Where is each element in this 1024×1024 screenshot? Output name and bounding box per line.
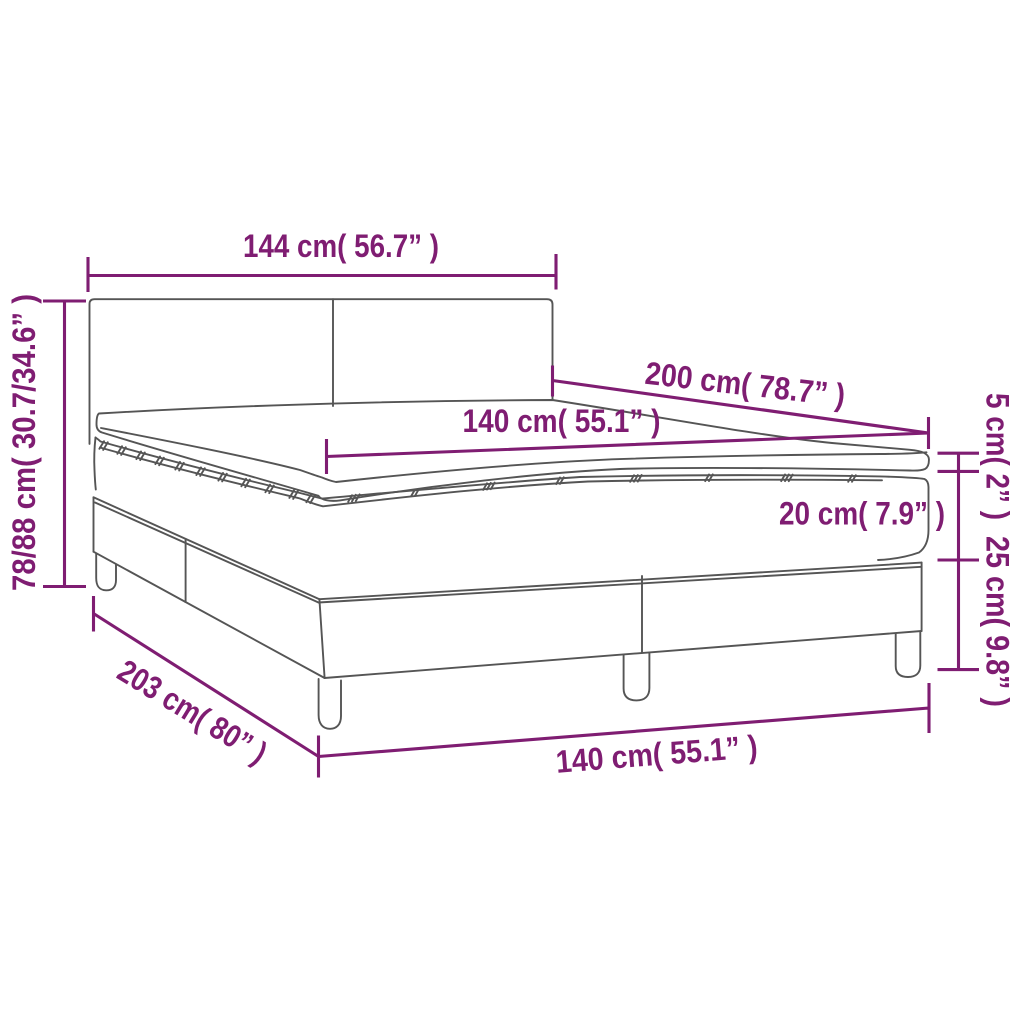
svg-text:5 cm( 2” ): 5 cm( 2” ) — [980, 393, 1016, 520]
svg-text:140 cm( 55.1” ): 140 cm( 55.1” ) — [463, 403, 661, 439]
svg-text:25 cm( 9.8” ): 25 cm( 9.8” ) — [980, 536, 1016, 707]
svg-text:144 cm( 56.7” ): 144 cm( 56.7” ) — [243, 228, 439, 264]
svg-text:20 cm( 7.9” ): 20 cm( 7.9” ) — [779, 496, 945, 532]
svg-text:78/88 cm( 30.7/34.6” ): 78/88 cm( 30.7/34.6” ) — [6, 294, 42, 591]
svg-text:200 cm( 78.7” ): 200 cm( 78.7” ) — [643, 355, 847, 414]
